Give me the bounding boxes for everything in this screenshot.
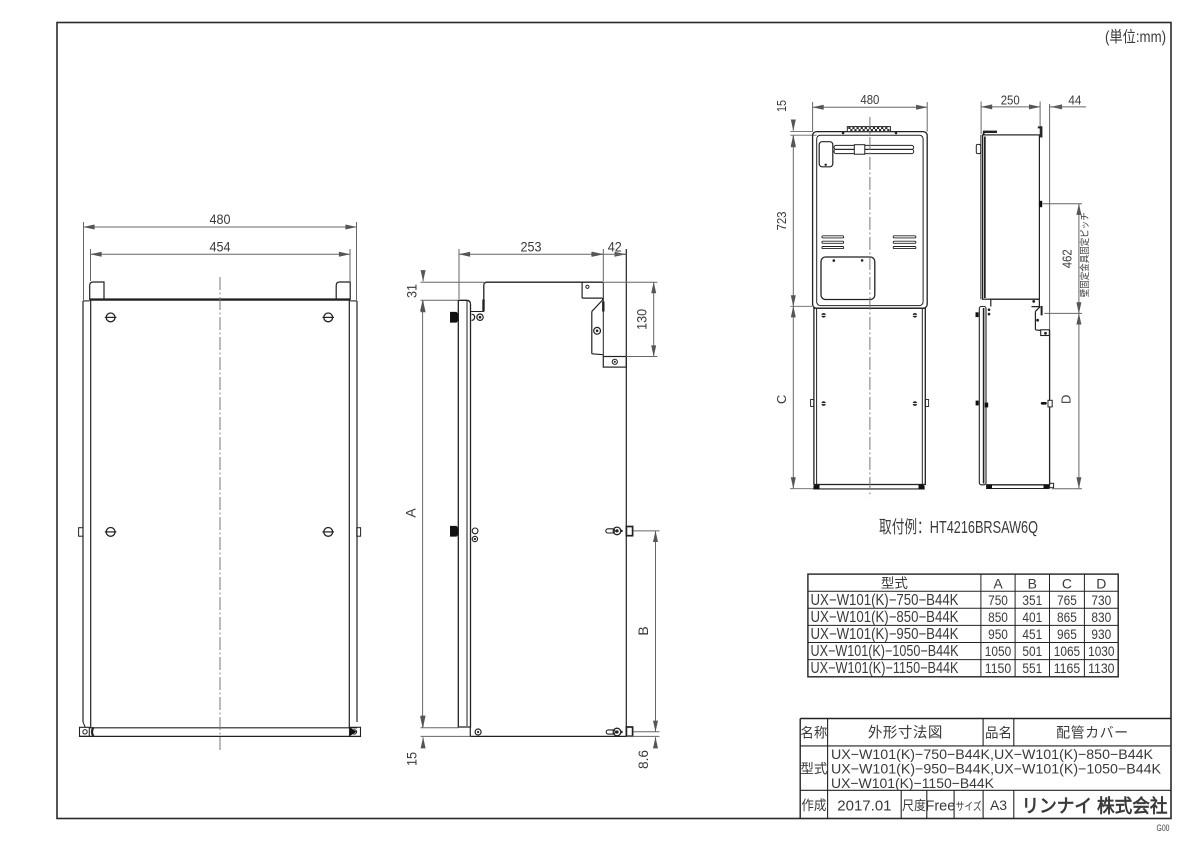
svg-text:A: A xyxy=(993,575,1003,591)
svg-text:D: D xyxy=(1096,575,1106,591)
svg-text:C: C xyxy=(774,395,789,404)
svg-text:B: B xyxy=(635,626,651,635)
svg-text:壁固定金具固定ピッチ: 壁固定金具固定ピッチ xyxy=(1079,212,1091,297)
svg-text:A: A xyxy=(403,508,419,518)
svg-text:15: 15 xyxy=(404,752,420,766)
svg-text:850: 850 xyxy=(988,609,1008,625)
svg-text:外形寸法図: 外形寸法図 xyxy=(868,725,943,742)
svg-text:750: 750 xyxy=(988,592,1008,608)
svg-text:31: 31 xyxy=(404,284,420,298)
svg-text:UX−W101(K)−950−B44K: UX−W101(K)−950−B44K xyxy=(811,626,960,643)
svg-text:950: 950 xyxy=(988,626,1008,642)
svg-text:765: 765 xyxy=(1057,592,1077,608)
svg-text:351: 351 xyxy=(1022,592,1042,608)
svg-text:451: 451 xyxy=(1022,626,1042,642)
svg-text:B: B xyxy=(1028,575,1037,591)
svg-text:G00: G00 xyxy=(1157,823,1170,834)
svg-text:1150: 1150 xyxy=(985,660,1012,676)
svg-text:型式: 型式 xyxy=(800,762,828,777)
svg-text:551: 551 xyxy=(1022,660,1042,676)
svg-text:UX−W101(K)−1150−B44K: UX−W101(K)−1150−B44K xyxy=(811,660,960,677)
svg-text:15: 15 xyxy=(774,100,789,112)
svg-text:A3: A3 xyxy=(990,797,1007,813)
svg-text:UX−W101(K)−1150−B44K: UX−W101(K)−1150−B44K xyxy=(831,776,995,792)
svg-text:取付例：HT4216BRSAW6Q: 取付例：HT4216BRSAW6Q xyxy=(879,517,1038,537)
svg-text:サイズ: サイズ xyxy=(956,799,982,813)
svg-text:401: 401 xyxy=(1022,609,1042,625)
svg-text:1165: 1165 xyxy=(1054,660,1081,676)
svg-text:1050: 1050 xyxy=(985,643,1012,659)
svg-text:44: 44 xyxy=(1068,92,1081,107)
svg-text:尺度: 尺度 xyxy=(902,798,926,813)
svg-text:UX−W101(K)−850−B44K: UX−W101(K)−850−B44K xyxy=(811,609,960,626)
svg-text:配管カバー: 配管カバー xyxy=(1056,725,1129,741)
svg-text:830: 830 xyxy=(1091,609,1111,625)
svg-text:リンナイ 株式会社: リンナイ 株式会社 xyxy=(1022,796,1168,817)
svg-text:42: 42 xyxy=(608,238,622,254)
svg-text:2017.01: 2017.01 xyxy=(837,798,891,815)
svg-text:480: 480 xyxy=(860,92,879,107)
svg-text:480: 480 xyxy=(210,211,231,227)
svg-text:Free: Free xyxy=(925,799,955,815)
svg-text:930: 930 xyxy=(1091,626,1111,642)
svg-text:501: 501 xyxy=(1022,643,1042,659)
svg-text:1065: 1065 xyxy=(1054,643,1081,659)
svg-text:723: 723 xyxy=(774,212,789,231)
svg-text:865: 865 xyxy=(1057,609,1077,625)
svg-text:型式: 型式 xyxy=(881,576,909,591)
svg-text:1030: 1030 xyxy=(1088,643,1115,659)
svg-text:462: 462 xyxy=(1060,249,1075,268)
svg-text:名称: 名称 xyxy=(800,725,827,740)
svg-text:730: 730 xyxy=(1091,592,1111,608)
svg-text:UX−W101(K)−750−B44K: UX−W101(K)−750−B44K xyxy=(811,592,960,609)
svg-text:8.6: 8.6 xyxy=(635,750,651,769)
svg-text:130: 130 xyxy=(633,309,649,330)
svg-text:454: 454 xyxy=(210,238,231,254)
svg-text:UX−W101(K)−1050−B44K: UX−W101(K)−1050−B44K xyxy=(811,643,960,660)
svg-text:(単位:mm): (単位:mm) xyxy=(1105,28,1166,46)
svg-text:品名: 品名 xyxy=(985,725,1012,740)
svg-text:253: 253 xyxy=(521,238,542,254)
svg-text:250: 250 xyxy=(1001,92,1020,107)
svg-text:965: 965 xyxy=(1057,626,1077,642)
svg-text:作成: 作成 xyxy=(801,798,826,813)
svg-text:C: C xyxy=(1062,575,1072,591)
svg-text:1130: 1130 xyxy=(1088,660,1115,676)
svg-text:D: D xyxy=(1058,395,1073,404)
